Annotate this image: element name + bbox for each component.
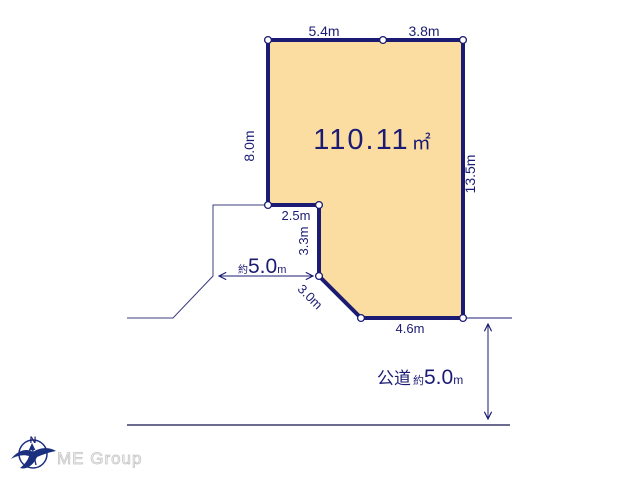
edge-label-bottom: 4.6m — [396, 321, 425, 336]
area-value: 110.11 — [313, 124, 409, 156]
south-road-value: 5.0 — [424, 366, 453, 389]
vertex-dot — [380, 37, 387, 44]
area-unit: ㎡ — [412, 131, 431, 154]
south-road-name: 公道 — [377, 369, 411, 388]
vertex-dot — [316, 202, 323, 209]
edge-label-notch-top: 2.5m — [282, 208, 311, 223]
vertex-dot — [460, 315, 467, 322]
neighbor-boundary-line — [127, 205, 268, 318]
company-logo-text: ME Group — [57, 449, 142, 468]
edge-label-top-right: 3.8m — [408, 23, 439, 39]
vertex-dot — [460, 37, 467, 44]
west-road-unit: m — [277, 264, 286, 276]
west-road-label: 約5.0m — [238, 255, 286, 278]
compass-north-label: N — [30, 435, 37, 445]
vertex-dot — [265, 202, 272, 209]
vertex-dot — [358, 315, 365, 322]
edge-label-notch-diagonal: 3.0m — [295, 281, 326, 312]
land-plot-diagram: 5.4m 3.8m 8.0m 13.5m 2.5m 3.3m 3.0m 4.6m… — [0, 0, 640, 480]
compass-icon: N — [11, 435, 56, 468]
south-road-label: 公道約5.0m — [377, 366, 463, 389]
diagram-svg: 5.4m 3.8m 8.0m 13.5m 2.5m 3.3m 3.0m 4.6m… — [0, 0, 640, 480]
edge-label-notch-side: 3.3m — [296, 227, 311, 256]
edge-label-right: 13.5m — [462, 155, 478, 194]
vertex-dot — [316, 273, 323, 280]
vertex-dot — [265, 37, 272, 44]
south-road-approx: 約 — [413, 373, 424, 387]
edge-label-left: 8.0m — [241, 130, 257, 161]
west-road-approx: 約 — [238, 263, 248, 276]
west-road-value: 5.0 — [248, 255, 277, 278]
south-road-unit: m — [453, 373, 463, 387]
edge-label-top-left: 5.4m — [308, 23, 339, 39]
